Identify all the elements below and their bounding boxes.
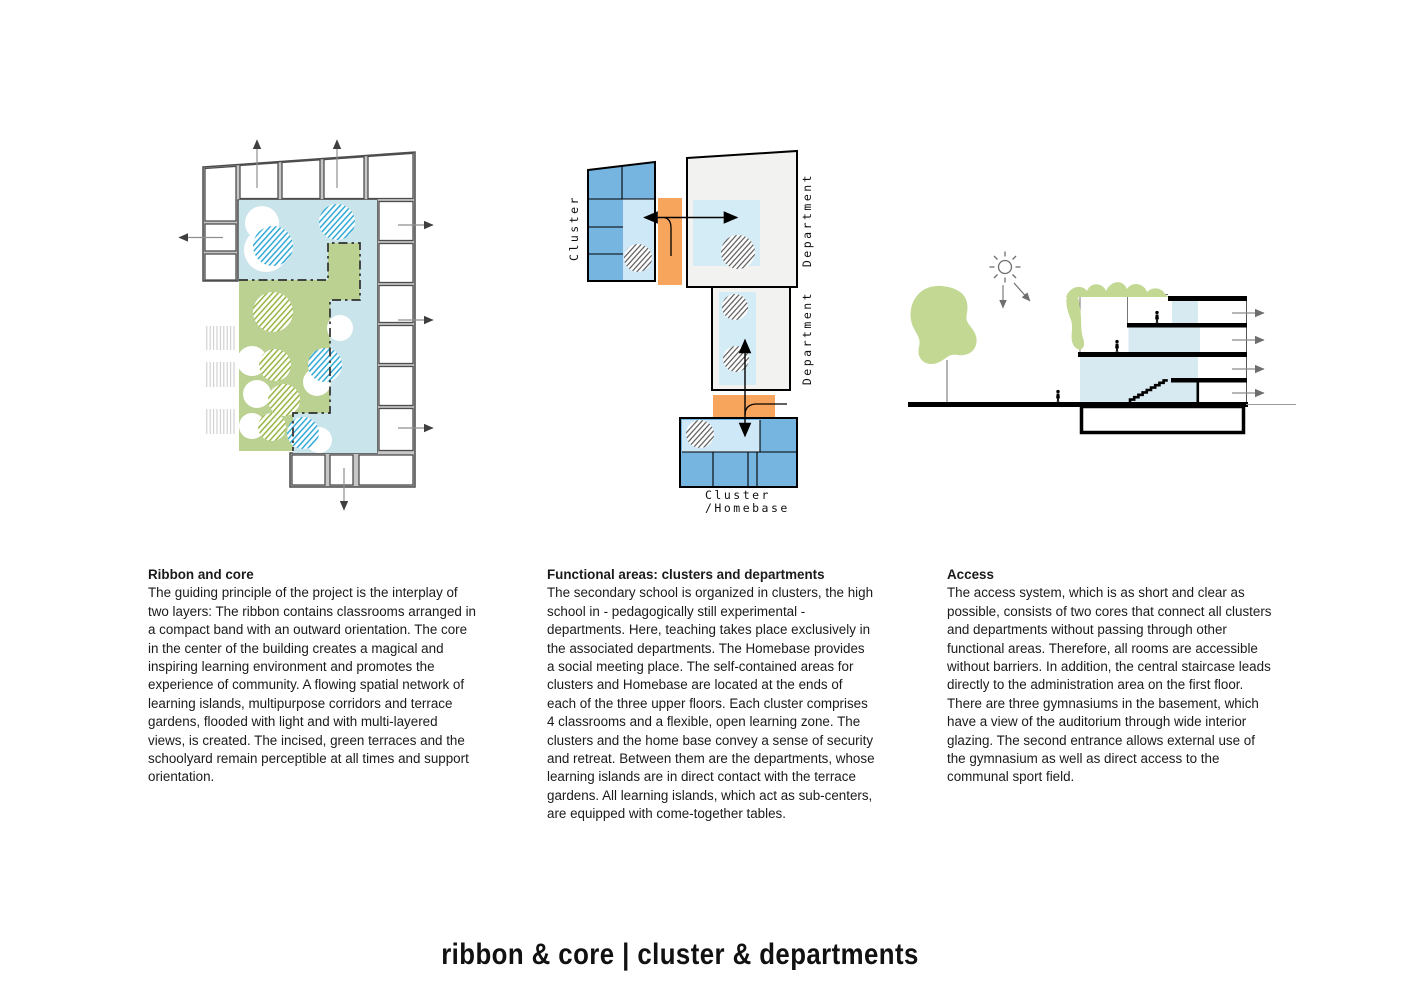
column-heading: Ribbon and core	[148, 566, 476, 584]
department-block-mid	[712, 287, 790, 390]
basement-gymnasium	[1082, 407, 1244, 433]
atrium-space	[1172, 301, 1198, 323]
column-heading: Access	[947, 566, 1275, 584]
atrium-space	[1129, 328, 1201, 353]
learning-island-circle	[721, 235, 755, 269]
sheet-title: ribbon & core | cluster & departments	[441, 938, 919, 972]
text-column-access: Access The access system, which is as sh…	[947, 566, 1275, 787]
column-body: The secondary school is organized in clu…	[547, 584, 875, 823]
department-block-top	[687, 151, 797, 287]
floor-plan-diagram	[165, 110, 465, 530]
tree-icon	[911, 286, 977, 402]
column-heading: Functional areas: clusters and departmen…	[547, 566, 875, 584]
department-top-label: Department	[800, 173, 814, 267]
learning-zone-circle	[686, 420, 714, 448]
text-column-ribbon-core: Ribbon and core The guiding principle of…	[148, 566, 476, 787]
sun-icon	[990, 252, 1031, 309]
column-body: The access system, which is as short and…	[947, 584, 1275, 786]
presentation-sheet: Cluster Department Department Cluster /H…	[0, 0, 1414, 1000]
cluster-homebase-block	[680, 418, 797, 487]
access-core-connector	[658, 198, 682, 285]
homebase-label-line2: /Homebase	[705, 501, 790, 515]
access-core-connector	[713, 395, 775, 420]
department-mid-label: Department	[800, 291, 814, 385]
schoolyard-stripes	[205, 326, 235, 434]
cluster-label: Cluster	[567, 195, 581, 261]
cluster-block	[588, 162, 655, 281]
homebase-label-line1: Cluster	[705, 488, 771, 502]
functional-areas-diagram: Cluster Department Department Cluster /H…	[545, 140, 835, 525]
learning-zone-circle	[624, 244, 652, 272]
column-body: The guiding principle of the project is …	[148, 584, 476, 786]
access-section-diagram	[890, 230, 1310, 460]
learning-island-circle	[722, 294, 748, 320]
text-column-functional-areas: Functional areas: clusters and departmen…	[547, 566, 875, 824]
